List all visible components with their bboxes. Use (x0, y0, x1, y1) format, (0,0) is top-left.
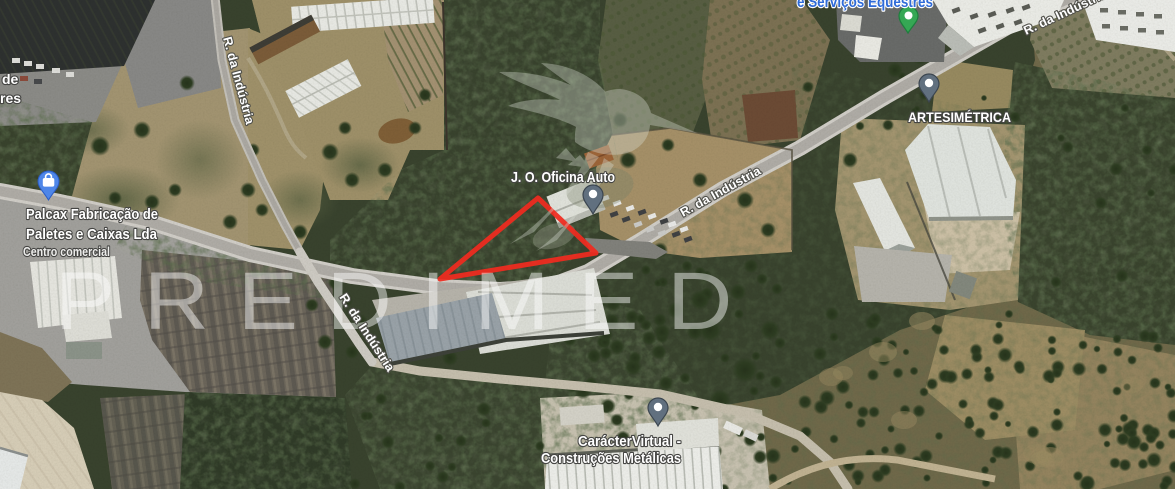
svg-text:e Serviços Equestres: e Serviços Equestres (797, 0, 933, 11)
svg-text:de: de (2, 71, 19, 87)
svg-text:PREDIMED: PREDIMED (55, 256, 761, 347)
svg-text:ARTESIMÉTRICA: ARTESIMÉTRICA (908, 109, 1011, 125)
svg-text:Palcax Fabricação de: Palcax Fabricação de (26, 206, 158, 223)
svg-text:Construções Metálicas: Construções Metálicas (541, 451, 681, 467)
svg-text:Paletes e Caixas Lda: Paletes e Caixas Lda (26, 226, 158, 243)
svg-text:J. O. Oficina Auto: J. O. Oficina Auto (511, 169, 615, 186)
svg-text:CarácterVirtual -: CarácterVirtual - (578, 434, 681, 450)
svg-text:res: res (0, 90, 21, 106)
svg-text:Centro comercial: Centro comercial (23, 245, 110, 259)
